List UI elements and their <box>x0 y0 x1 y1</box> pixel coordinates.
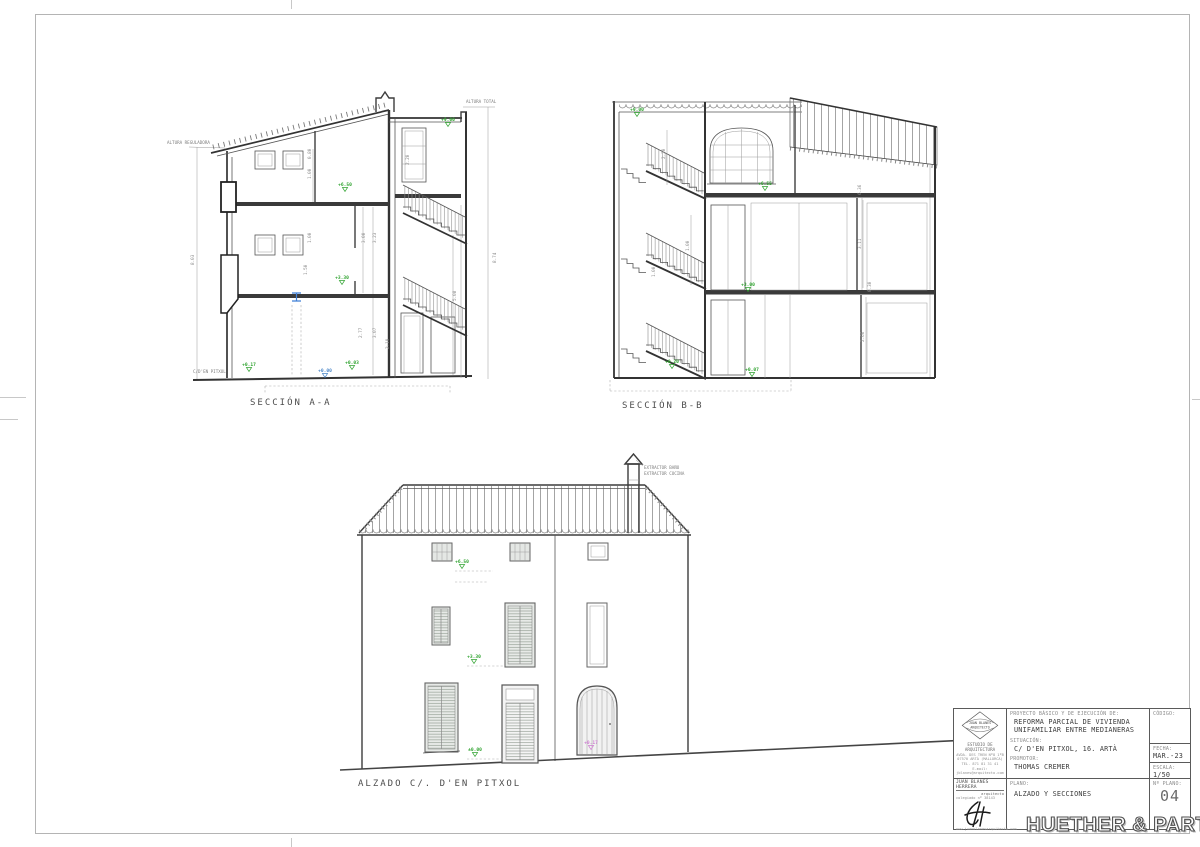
project-label: PROYECTO BÁSICO Y DE EJECUCIÓN DE: <box>1010 711 1146 717</box>
fecha-cell: FECHA: MAR.-23 <box>1150 744 1190 763</box>
aa-stair-lower <box>403 277 467 336</box>
architect-logo-cell: JUAN BLANES ARQUITECTO ESTUDIO DE ARQUIT… <box>954 709 1006 779</box>
svg-text:+6.50: +6.50 <box>338 182 352 188</box>
svg-text:+6.50: +6.50 <box>455 559 469 565</box>
studio-address-line: E-mail: jblanes@arquitecto.com <box>955 767 1005 776</box>
svg-text:5.08: 5.08 <box>452 290 458 301</box>
aa-dimension-chains: ALTURA REGULADORA ALTURA TOTAL 8.03 8.74 <box>167 99 498 379</box>
title-block: JUAN BLANES ARQUITECTO ESTUDIO DE ARQUIT… <box>953 708 1191 830</box>
svg-text:3.00: 3.00 <box>361 232 367 243</box>
svg-text:+3.30: +3.30 <box>335 275 349 281</box>
huether-partner-watermark: HUETHER & PARTNER <box>1026 814 1200 837</box>
title-block-info-column: PROYECTO BÁSICO Y DE EJECUCIÓN DE: REFOR… <box>1007 709 1150 829</box>
bb-interior-frames <box>711 198 927 378</box>
svg-text:1.00: 1.00 <box>651 266 657 277</box>
svg-text:+9.00: +9.00 <box>441 117 455 123</box>
svg-text:2.20: 2.20 <box>661 148 667 159</box>
svg-text:1.00: 1.00 <box>307 168 313 179</box>
aa-chimney <box>376 92 394 112</box>
el-chimney-label-1: EXTRACTOR BAÑO <box>644 465 680 470</box>
svg-text:0.80: 0.80 <box>307 148 313 159</box>
section-aa-title: SECCIÓN A-A <box>250 398 332 408</box>
promotor-value: THOMAS CREMER <box>1014 763 1146 771</box>
trim-mark <box>1192 399 1200 400</box>
aa-level-marker: +0.00 <box>318 368 332 378</box>
section-aa-drawing: ALTURA REGULADORA ALTURA TOTAL 8.03 8.74… <box>165 85 515 415</box>
aa-level-marker: +3.30 <box>335 275 349 285</box>
project-info-cell: PROYECTO BÁSICO Y DE EJECUCIÓN DE: REFOR… <box>1007 709 1149 779</box>
bb-arched-window <box>707 128 776 184</box>
aa-dim-total-left: 8.03 <box>190 254 196 265</box>
svg-text:JUAN BLANES: JUAN BLANES <box>969 721 991 725</box>
codigo-label: CÓDIGO: <box>1153 711 1187 717</box>
plano-value: ALZADO Y SECCIONES <box>1014 790 1146 798</box>
svg-text:2.66: 2.66 <box>860 331 866 342</box>
bb-level-marker: +0.20 <box>665 359 679 369</box>
el-chimney-label-2: EXTRACTOR COCINA <box>644 471 685 476</box>
bb-stair-bottom <box>621 323 706 379</box>
aa-label-altura-reguladora: ALTURA REGULADORA <box>167 140 210 145</box>
signature <box>962 801 998 827</box>
trim-mark <box>291 0 292 9</box>
aa-level-marker: +9.00 <box>441 117 455 127</box>
trim-mark <box>0 419 18 420</box>
svg-text:1.00: 1.00 <box>685 240 691 251</box>
studio-label: ESTUDIO DE ARQUITECTURA <box>955 742 1005 753</box>
fecha-value: MAR.-23 <box>1153 752 1187 760</box>
aa-label-altura-total: ALTURA TOTAL <box>466 99 497 104</box>
svg-text:+0.17: +0.17 <box>584 740 598 746</box>
aa-street-label: C/D'EN PITXOL <box>193 369 226 374</box>
signature-cell: JUAN BLANES HERRERA arquitecto colegiado… <box>954 779 1006 832</box>
svg-text:6.36: 6.36 <box>857 184 863 195</box>
situacion-value: C/ D'EN PITXOL, 16. ARTÀ <box>1014 745 1146 753</box>
codigo-cell: CÓDIGO: <box>1150 709 1190 744</box>
aa-dim-total-right: 8.74 <box>492 252 498 263</box>
elevation-title: ALZADO C/. D'EN PITXOL <box>358 779 521 789</box>
svg-text:3.23: 3.23 <box>372 232 378 243</box>
svg-text:1.00: 1.00 <box>307 232 313 243</box>
svg-text:1.50: 1.50 <box>303 264 309 275</box>
aa-steel-beam <box>292 293 301 376</box>
bb-stair-mid <box>621 233 706 289</box>
bb-level-marker: +9.00 <box>630 107 644 117</box>
bb-level-marker: +6.55 <box>758 181 772 191</box>
num-plano-value: 04 <box>1153 787 1187 805</box>
svg-text:+0.17: +0.17 <box>242 362 256 368</box>
trim-mark <box>291 838 292 847</box>
trim-mark <box>0 397 26 398</box>
aa-windows <box>255 128 455 373</box>
svg-text:±0.00: ±0.00 <box>468 747 482 753</box>
promotor-label: PROMOTOR: <box>1010 756 1146 762</box>
title-block-meta-column: CÓDIGO: FECHA: MAR.-23 ESCALA: 1/50 Nº P… <box>1150 709 1190 829</box>
svg-text:0.30: 0.30 <box>867 281 873 292</box>
architect-logo: JUAN BLANES ARQUITECTO <box>958 711 1002 740</box>
svg-text:+6.55: +6.55 <box>758 181 772 187</box>
aa-walls-roof <box>211 92 467 378</box>
el-attic-windows <box>432 543 608 561</box>
svg-text:2.19: 2.19 <box>385 338 391 349</box>
svg-text:ARQUITECTO: ARQUITECTO <box>970 726 989 730</box>
svg-text:+3.00: +3.00 <box>741 282 755 288</box>
svg-text:+0.03: +0.03 <box>345 360 359 366</box>
aa-stair-upper <box>403 185 467 244</box>
escala-cell: ESCALA: 1/50 <box>1150 763 1190 779</box>
section-bb-drawing: +9.00 +6.55 +3.00 +0.20 +0.07 2.20 1.00 … <box>605 85 950 415</box>
title-block-logo-column: JUAN BLANES ARQUITECTO ESTUDIO DE ARQUIT… <box>954 709 1007 829</box>
aa-level-marker: +0.17 <box>242 362 256 372</box>
firm-name: JUAN BLANES HERRERA <box>956 780 1004 791</box>
svg-text:3.11: 3.11 <box>857 238 863 249</box>
plano-label: PLANO: <box>1010 781 1146 787</box>
svg-text:3.07: 3.07 <box>372 327 378 338</box>
svg-text:+9.00: +9.00 <box>630 107 644 113</box>
el-level-marker: +3.30 <box>467 654 481 664</box>
svg-text:+0.20: +0.20 <box>665 359 679 365</box>
el-roof <box>357 485 691 535</box>
aa-level-marker: +6.50 <box>338 182 352 192</box>
el-mid-windows <box>432 603 607 667</box>
project-value: REFORMA PARCIAL DE VIVIENDA UNIFAMILIAR … <box>1014 718 1146 735</box>
svg-text:2.77: 2.77 <box>358 327 364 338</box>
bb-level-marker: +0.07 <box>745 367 759 377</box>
section-bb-title: SECCIÓN B-B <box>622 401 704 411</box>
plan-sheet: { "sheet": { "watermark": "HUETHER & PAR… <box>0 0 1200 847</box>
studio-website: www.juanblanesarquitecto.com <box>956 827 1004 831</box>
el-level-marker: ±0.00 <box>468 747 482 757</box>
elevation-drawing: EXTRACTOR BAÑO EXTRACTOR COCINA <box>335 450 1040 795</box>
aa-ground: C/D'EN PITXOL <box>193 369 472 394</box>
svg-text:2.20: 2.20 <box>405 154 411 165</box>
svg-text:+0.00: +0.00 <box>318 368 332 374</box>
situacion-label: SITUACIÓN: <box>1010 738 1146 744</box>
el-ground-floor-openings <box>423 683 617 763</box>
svg-text:+0.07: +0.07 <box>745 367 759 373</box>
aa-dimensions: 0.80 1.00 2.20 1.00 3.00 3.23 1.50 2.77 … <box>303 148 458 349</box>
el-level-marker: +6.50 <box>455 559 469 569</box>
svg-text:+3.30: +3.30 <box>467 654 481 660</box>
aa-level-marker: +0.03 <box>345 360 359 370</box>
